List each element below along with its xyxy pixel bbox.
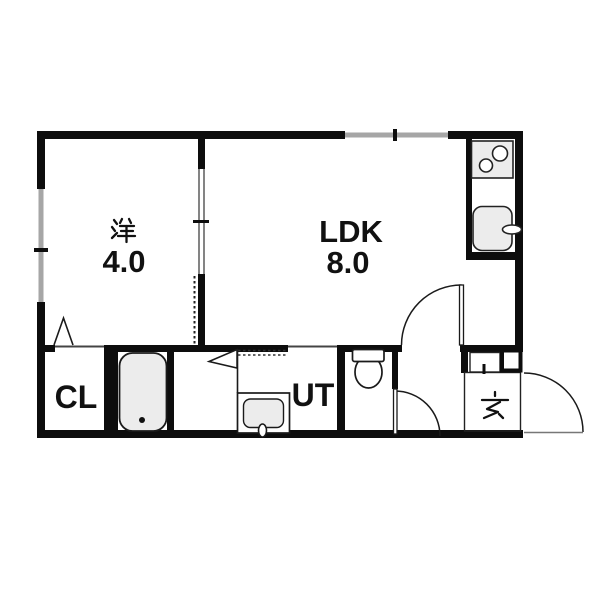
sliding-door-tick bbox=[193, 220, 209, 223]
entrance-floor-outline bbox=[465, 373, 521, 432]
ldk-room-label: LDK bbox=[319, 214, 383, 249]
western-room-label bbox=[112, 219, 135, 242]
wall-left-upper bbox=[37, 131, 45, 189]
window-top-tick bbox=[393, 129, 397, 141]
window-left-tick bbox=[34, 248, 48, 252]
utility-label: UT bbox=[292, 377, 335, 413]
wall-kitchen-bottom bbox=[466, 252, 523, 260]
wall-cl-bath bbox=[104, 345, 118, 438]
wall-hall-entrance bbox=[461, 352, 468, 373]
wall-top-left bbox=[37, 131, 345, 139]
kitchen-stove-icon bbox=[472, 141, 514, 178]
wall-partition-upper bbox=[198, 139, 205, 169]
stove-burner-large-icon bbox=[493, 146, 508, 161]
bathroom bbox=[120, 353, 167, 431]
wall-toilet-hall bbox=[392, 352, 398, 389]
entrance-label bbox=[482, 392, 508, 418]
windows bbox=[39, 133, 449, 303]
wall-bath-right bbox=[167, 352, 174, 438]
stove-burner-small-icon bbox=[480, 159, 493, 172]
toilet-door-leaf bbox=[394, 389, 398, 434]
wall-top-right bbox=[448, 131, 523, 139]
washbasin-faucet-icon bbox=[259, 424, 267, 437]
walls bbox=[37, 131, 523, 438]
closet-label: CL bbox=[55, 379, 98, 415]
ldk-hall-door-leaf bbox=[460, 285, 464, 345]
wall-left-lower bbox=[37, 302, 45, 438]
closet-folding-door-icon bbox=[54, 318, 73, 345]
floor-plan: 4.0 LDK 8.0 CL UT bbox=[0, 0, 600, 600]
entrance-zone bbox=[465, 351, 521, 432]
wall-partition-lower bbox=[198, 274, 205, 345]
kitchen-faucet-icon bbox=[503, 225, 522, 234]
bath-area-door-icon bbox=[209, 350, 237, 369]
wall-right bbox=[515, 131, 523, 352]
washbasin-bowl-icon bbox=[244, 399, 284, 428]
shoe-cabinet-tick bbox=[483, 364, 486, 374]
toilet-room bbox=[353, 350, 385, 389]
western-room-size: 4.0 bbox=[102, 244, 145, 279]
utility-fixtures bbox=[238, 349, 290, 437]
bathtub-drain-icon bbox=[139, 417, 145, 423]
toilet-door-arc bbox=[395, 391, 440, 436]
ldk-hall-door-arc bbox=[402, 285, 462, 345]
floor-plan-canvas: 4.0 LDK 8.0 CL UT bbox=[0, 0, 600, 600]
ldk-room-size: 8.0 bbox=[326, 245, 369, 280]
window-left bbox=[39, 189, 44, 302]
toilet-tank-icon bbox=[353, 350, 385, 362]
wall-ut-toilet bbox=[337, 352, 345, 438]
entrance-door-arc bbox=[524, 373, 583, 432]
shoe-cabinet-right bbox=[502, 351, 521, 371]
kitchen-unit bbox=[472, 141, 522, 251]
wall-bottomrow-left-corner bbox=[37, 345, 55, 352]
